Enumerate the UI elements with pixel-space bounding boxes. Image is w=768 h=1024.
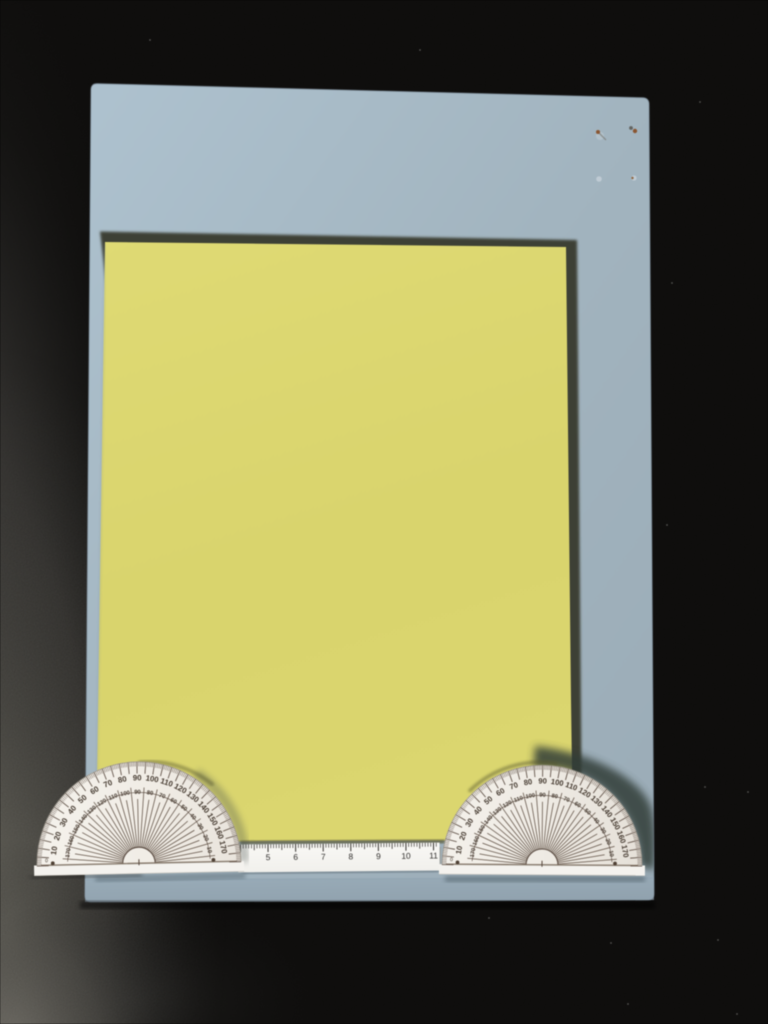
svg-text:80: 80 [523, 777, 533, 787]
svg-text:11: 11 [429, 850, 438, 860]
svg-text:10: 10 [401, 851, 411, 861]
svg-text:90: 90 [133, 773, 143, 782]
svg-text:0: 0 [45, 858, 48, 864]
svg-text:9: 9 [376, 851, 381, 861]
svg-text:5: 5 [266, 852, 271, 862]
svg-text:0: 0 [450, 857, 453, 863]
svg-text:7: 7 [321, 852, 326, 862]
svg-text:90: 90 [538, 776, 547, 785]
svg-text:6: 6 [293, 852, 298, 862]
svg-text:10: 10 [454, 845, 464, 855]
svg-text:90: 90 [539, 793, 545, 799]
svg-text:8: 8 [348, 851, 353, 861]
